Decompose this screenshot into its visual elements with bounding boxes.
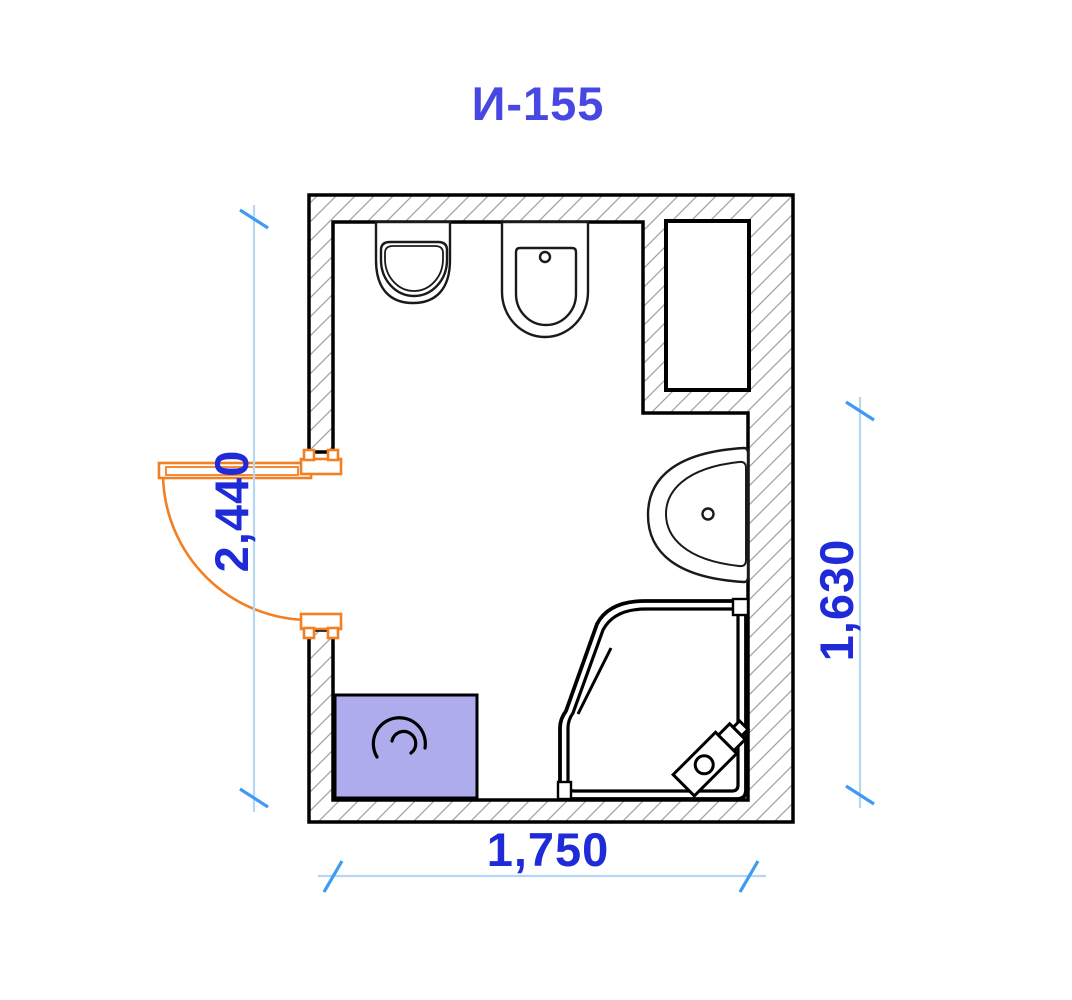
corner-shower-icon: [558, 599, 754, 799]
dimension-left-label: 2,440: [205, 450, 258, 573]
floor-plan-drawing: И-155: [0, 0, 1072, 1000]
sink-icon: [648, 448, 748, 582]
dimension-right-label: 1,630: [810, 539, 863, 662]
flush-button-icon: [540, 252, 550, 262]
plan-title: И-155: [472, 77, 605, 130]
dimension-left: 2,440: [205, 205, 268, 812]
toilet-icon: [502, 222, 588, 337]
dimension-bottom-label: 1,750: [487, 823, 610, 876]
floor-plan-page: И-155: [0, 0, 1072, 1000]
drain-icon: [703, 509, 714, 520]
washing-machine-icon: [335, 695, 477, 798]
shower-frame-cap-top: [733, 599, 748, 615]
urinal-icon: [376, 222, 450, 303]
shower-frame-cap-bottom: [558, 782, 571, 799]
ventilation-shaft-icon: [666, 221, 749, 390]
dimension-right: 1,630: [810, 397, 874, 808]
dimension-bottom: 1,750: [318, 823, 766, 892]
